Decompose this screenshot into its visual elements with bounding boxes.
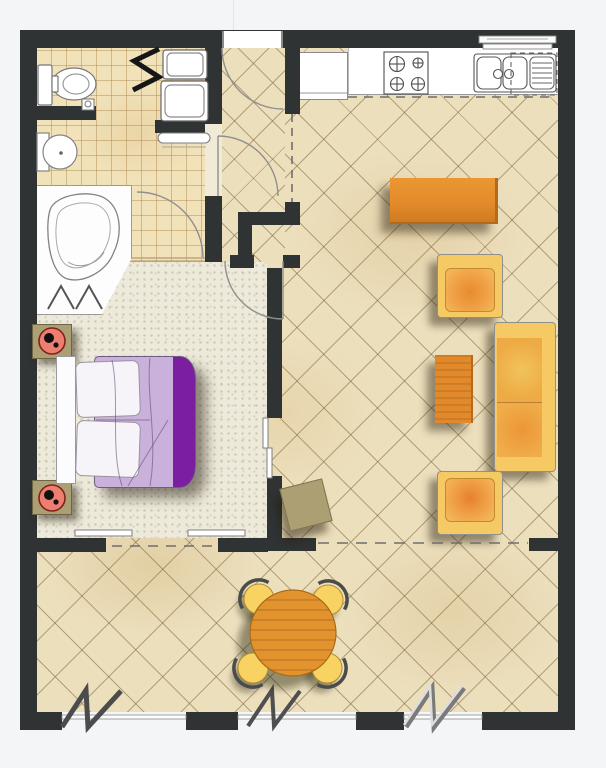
wall-toilet-stub (36, 106, 96, 120)
floor-entry-hall (222, 48, 285, 262)
wall-bedroom-niche-left (238, 225, 252, 258)
fridge (299, 52, 348, 100)
wall-west (20, 30, 37, 730)
wall-east (558, 30, 575, 730)
coffee-table (435, 355, 473, 423)
armchair-cushion (445, 478, 495, 522)
sideboard (390, 178, 498, 224)
sofa-cushion (497, 403, 542, 457)
wall-south-seg3 (356, 712, 404, 730)
wall-south-seg1 (20, 712, 62, 730)
wall-bathroom-east-upper (205, 48, 222, 124)
entry-door-opening (222, 31, 283, 48)
wall-south-seg2 (186, 712, 238, 730)
armchair-north (437, 254, 503, 318)
nightstand-south (32, 480, 72, 515)
wall-bedroom-niche-top (238, 212, 300, 225)
wall-north (20, 30, 575, 48)
nightstand-north (32, 324, 72, 359)
bed-pillow-bottom (75, 420, 141, 478)
sofa-cushion-divider (497, 402, 542, 403)
armchair-cushion (445, 268, 495, 312)
sofa-cushion (497, 338, 542, 402)
wall-kitchen-west-upper (285, 48, 300, 114)
wall-bedroom-door-stub-right (283, 255, 300, 268)
wall-bedroom-south-left (36, 538, 106, 552)
armchair-south (437, 471, 503, 535)
wall-living-threshold-left (300, 538, 316, 551)
wall-bathroom-east-lower (205, 196, 222, 262)
wall-bedroom-door-stub-left (230, 255, 254, 268)
bed-headboard (56, 356, 76, 484)
south-window-sills (62, 715, 482, 719)
bathroom-door-opening (205, 124, 222, 196)
bed-pillow-top (75, 360, 141, 418)
wall-bedroom-east-lower (267, 476, 282, 540)
kitchen-counter (348, 48, 558, 95)
sofa (494, 322, 556, 472)
floor-plan-canvas (0, 0, 606, 768)
wall-south-seg4 (482, 712, 575, 730)
wall-bedroom-south-right (218, 538, 268, 552)
wall-living-threshold-right (529, 538, 558, 551)
paper-crease (233, 0, 234, 30)
wall-bedroom-east-upper (267, 268, 282, 418)
